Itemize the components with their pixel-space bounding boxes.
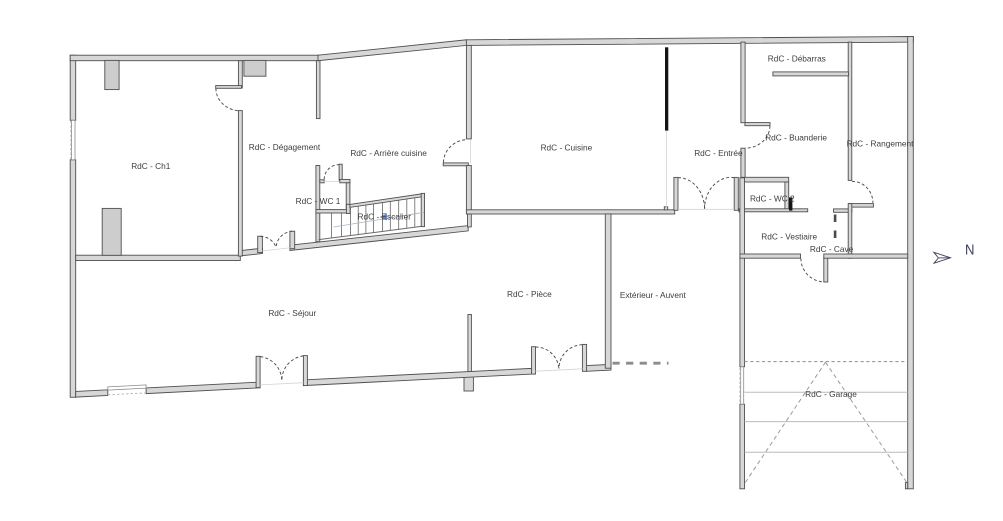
svg-text:RdC - Cuisine: RdC - Cuisine <box>541 143 593 153</box>
svg-text:RdC - Séjour: RdC - Séjour <box>268 308 316 318</box>
svg-text:RdC - WC 2: RdC - WC 2 <box>750 193 795 203</box>
svg-text:RdC - WC 1: RdC - WC 1 <box>296 196 341 206</box>
svg-text:RdC - Vestiaire: RdC - Vestiaire <box>761 232 817 242</box>
svg-text:RdC - Cave: RdC - Cave <box>810 244 854 254</box>
svg-text:N: N <box>965 242 975 259</box>
svg-text:RdC - Rangement: RdC - Rangement <box>847 138 915 148</box>
svg-text:Extérieur - Auvent: Extérieur - Auvent <box>620 290 687 300</box>
svg-text:RdC - Débarras: RdC - Débarras <box>768 53 826 63</box>
svg-text:RdC - Arrière cuisine: RdC - Arrière cuisine <box>350 148 427 158</box>
svg-text:RdC - Pièce: RdC - Pièce <box>507 289 552 299</box>
svg-text:RdC - Escalier: RdC - Escalier <box>358 212 412 222</box>
svg-text:RdC - Garage: RdC - Garage <box>805 389 857 399</box>
svg-text:RdC - Entrée: RdC - Entrée <box>694 148 743 158</box>
svg-text:RdC - Buanderie: RdC - Buanderie <box>765 133 827 143</box>
svg-text:RdC - Dégagement: RdC - Dégagement <box>249 142 321 152</box>
svg-text:RdC - Ch1: RdC - Ch1 <box>131 161 171 171</box>
